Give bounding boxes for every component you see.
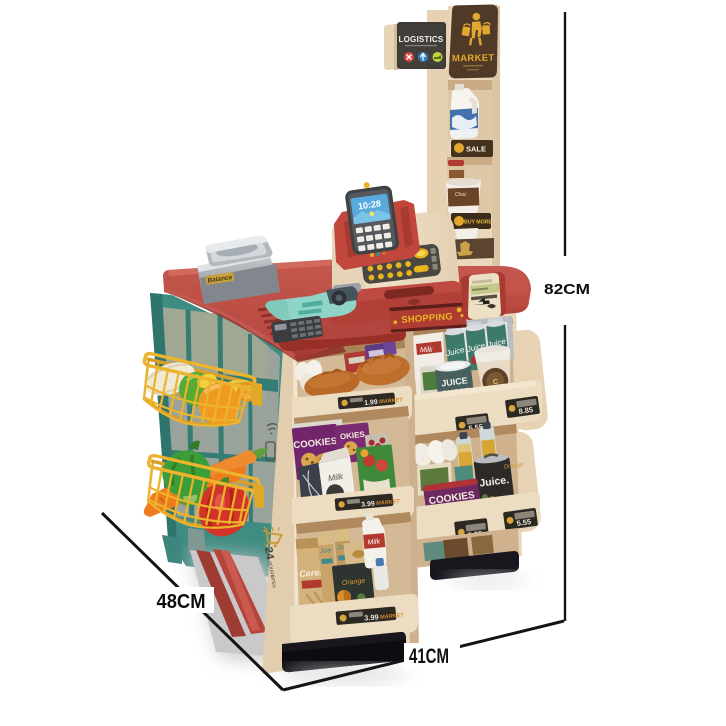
svg-text:3.99: 3.99 [361, 501, 375, 509]
svg-text:Milk: Milk [367, 538, 381, 546]
svg-text:82CM: 82CM [544, 281, 590, 298]
svg-text:Milk: Milk [420, 347, 433, 354]
svg-text:Choc: Choc [455, 192, 467, 198]
svg-text:1.99: 1.99 [364, 399, 378, 407]
svg-text:LOGISTICS: LOGISTICS [399, 35, 444, 44]
svg-text:SALE: SALE [466, 145, 486, 154]
svg-text:MARKET: MARKET [452, 53, 495, 65]
svg-text:41CM: 41CM [409, 645, 449, 668]
svg-text:3.99: 3.99 [364, 612, 379, 622]
svg-text:48CM: 48CM [157, 591, 206, 613]
svg-text:Joe: Joe [319, 547, 332, 555]
svg-text:BUY MORE: BUY MORE [464, 220, 492, 226]
